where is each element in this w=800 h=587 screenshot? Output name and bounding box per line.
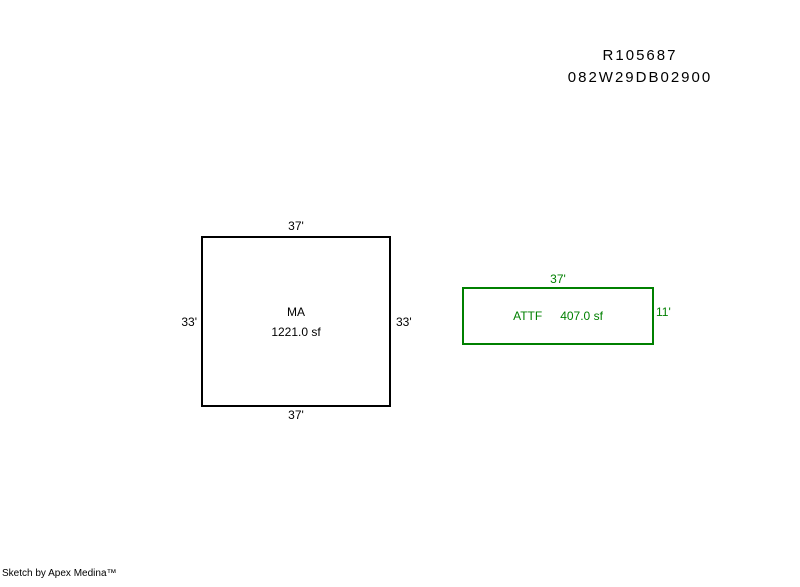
property-sketch-canvas: R105687 082W29DB02900 37' 33' 33' 37' MA…	[0, 0, 800, 587]
account-number: R105687	[540, 45, 740, 67]
main-area-dim-right: 33'	[396, 315, 412, 329]
attached-area-dim-top: 37'	[462, 272, 654, 286]
attached-area-size: 407.0 sf	[560, 309, 603, 323]
attached-area-outline: ATTF 407.0 sf	[462, 287, 654, 345]
main-area-dim-top: 37'	[201, 219, 391, 233]
main-area-size: 1221.0 sf	[271, 325, 320, 339]
main-area-dim-left: 33'	[151, 315, 197, 329]
attached-area-dim-right: 11'	[656, 305, 671, 319]
parcel-header: R105687 082W29DB02900	[540, 45, 740, 89]
main-area-outline: MA 1221.0 sf	[201, 236, 391, 407]
attached-area-code: ATTF	[513, 309, 542, 323]
map-taxlot-number: 082W29DB02900	[540, 67, 740, 89]
sketch-credit: Sketch by Apex Medina™	[2, 567, 117, 580]
main-area-dim-bottom: 37'	[201, 408, 391, 422]
main-area-code: MA	[287, 305, 305, 319]
